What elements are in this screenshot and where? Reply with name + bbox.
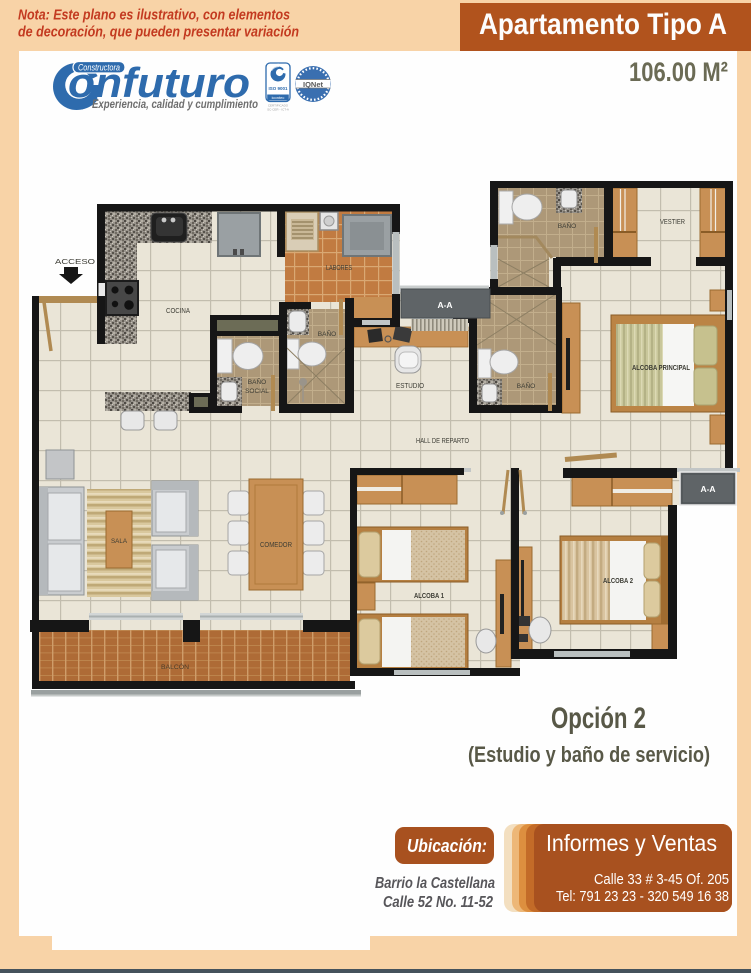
svg-text:IQNet: IQNet (303, 80, 324, 89)
svg-text:Experiencia, calidad y cumplim: Experiencia, calidad y cumplimiento (92, 97, 258, 111)
svg-text:Tel: 791 23 23 - 320 549 16 38: Tel: 791 23 23 - 320 549 16 38 (556, 888, 729, 905)
svg-text:BAÑO: BAÑO (517, 381, 535, 390)
svg-text:HALL DE REPARTO: HALL DE REPARTO (416, 438, 469, 445)
svg-text:ACCESO: ACCESO (55, 259, 96, 266)
svg-text:COMEDOR: COMEDOR (260, 542, 292, 549)
svg-text:LABORES: LABORES (326, 265, 352, 272)
svg-text:ALCOBA 2: ALCOBA 2 (603, 576, 633, 585)
svg-text:A-A: A-A (437, 300, 452, 310)
svg-text:A-A: A-A (700, 484, 715, 494)
svg-text:ISO 9001: ISO 9001 (268, 86, 288, 91)
svg-text:SC-CER - ICT-A: SC-CER - ICT-A (267, 108, 289, 112)
svg-text:106.00 M²: 106.00 M² (629, 57, 728, 87)
svg-text:Calle 33 # 3-45 Of. 205: Calle 33 # 3-45 Of. 205 (594, 871, 729, 888)
svg-text:COCINA: COCINA (166, 308, 190, 315)
svg-text:SALA: SALA (111, 538, 128, 545)
svg-text:ALCOBA 1: ALCOBA 1 (414, 591, 444, 600)
svg-text:Opción 2: Opción 2 (551, 702, 646, 735)
svg-text:BAÑO: BAÑO (558, 221, 576, 230)
svg-text:Calle 52 No. 11-52: Calle 52 No. 11-52 (383, 894, 493, 911)
svg-text:BALCÓN: BALCÓN (161, 662, 189, 671)
svg-text:de decoración, que pueden pres: de decoración, que pueden presentar vari… (18, 25, 299, 41)
svg-text:ALCOBA PRINCIPAL: ALCOBA PRINCIPAL (632, 363, 690, 372)
svg-text:Constructora: Constructora (78, 63, 120, 73)
svg-text:(Estudio y baño de servicio): (Estudio y baño de servicio) (468, 742, 710, 767)
svg-text:Nota: Este plano es ilustrativ: Nota: Este plano es ilustrativo, con ele… (18, 8, 290, 24)
svg-text:BAÑO: BAÑO (318, 329, 336, 338)
svg-text:Ubicación:: Ubicación: (407, 836, 487, 856)
svg-text:ESTUDIO: ESTUDIO (396, 383, 424, 390)
svg-text:BAÑO: BAÑO (248, 377, 266, 386)
svg-text:VESTIER: VESTIER (660, 219, 685, 226)
svg-text:Informes y Ventas: Informes y Ventas (546, 830, 717, 856)
svg-text:SOCIAL: SOCIAL (245, 388, 269, 395)
svg-text:Apartamento Tipo A: Apartamento Tipo A (479, 8, 727, 41)
svg-text:icontec: icontec (272, 95, 285, 100)
svg-text:Barrio la Castellana: Barrio la Castellana (375, 875, 495, 892)
